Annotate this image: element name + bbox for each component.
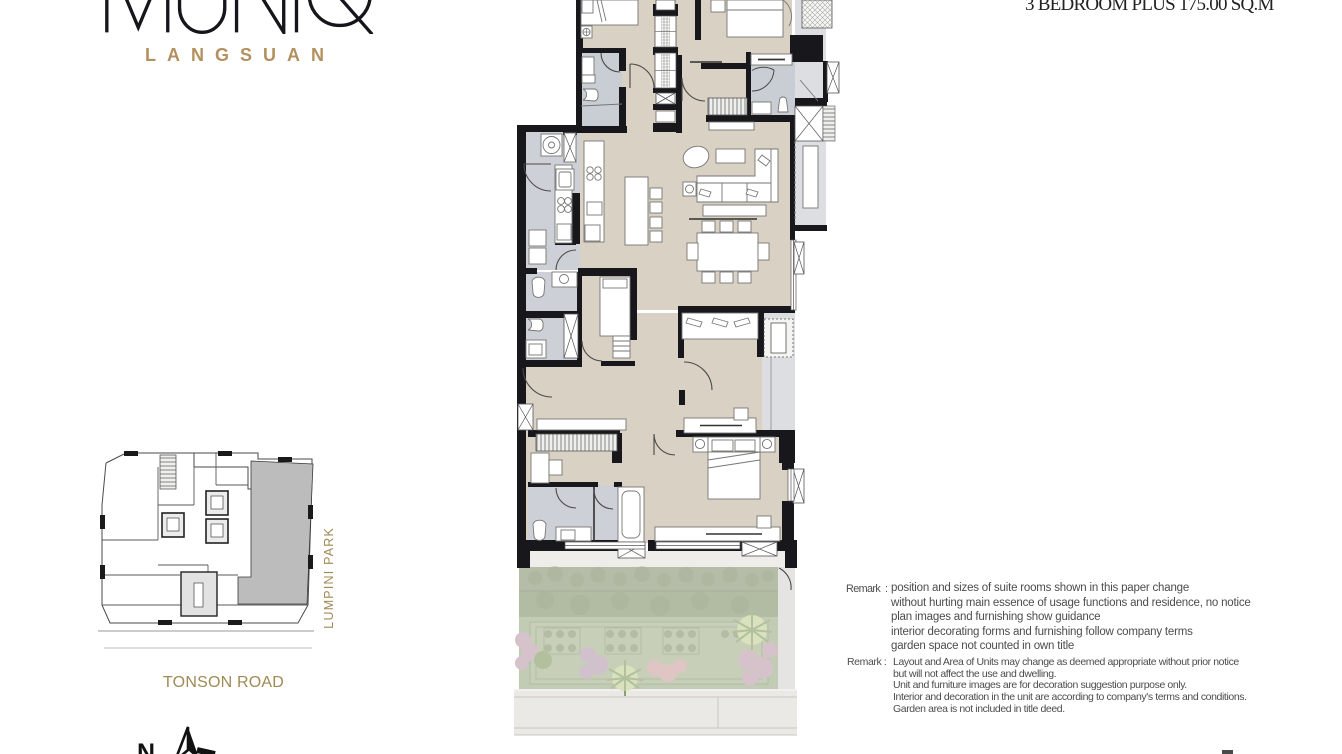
svg-text:N: N bbox=[137, 739, 155, 754]
